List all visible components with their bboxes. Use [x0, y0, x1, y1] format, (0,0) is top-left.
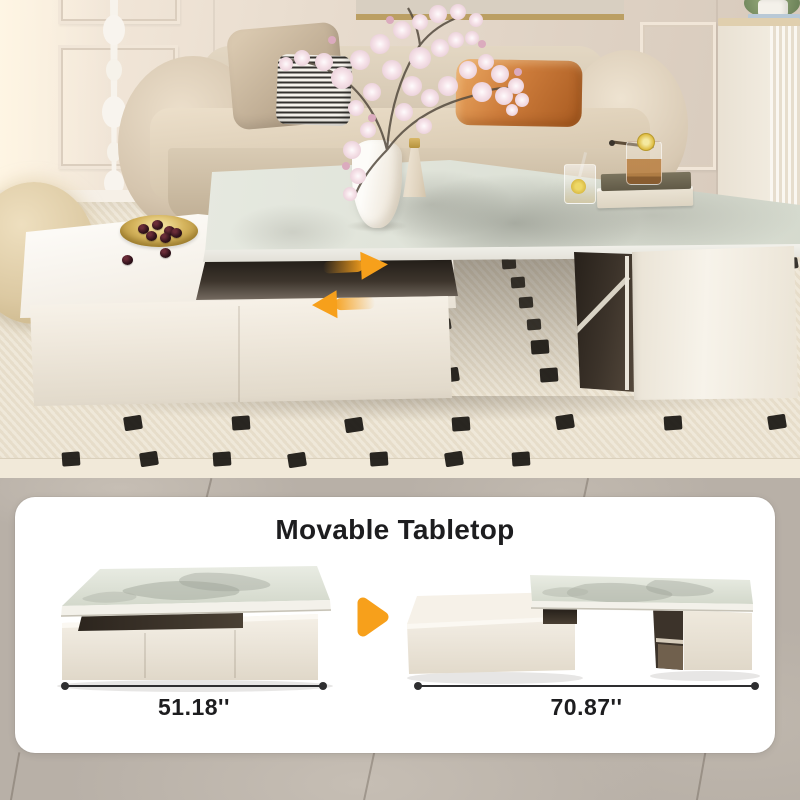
- cherry: [160, 248, 171, 258]
- dimension-line-extended: [416, 685, 757, 687]
- cherry: [146, 231, 157, 241]
- dimension-label-compact: 51.18'': [63, 694, 325, 721]
- cherry: [122, 255, 133, 265]
- diagram-compact: [45, 559, 345, 695]
- lemon-slice: [571, 179, 586, 194]
- diagram-extended: [405, 558, 767, 688]
- lemon-wheel: [637, 133, 655, 151]
- transform-arrow-icon: [353, 593, 391, 641]
- cherry: [152, 220, 163, 230]
- panel-title: Movable Tabletop: [15, 513, 775, 547]
- lifestyle-photo: [0, 0, 800, 497]
- flower-bouquet: [272, 0, 528, 236]
- info-panel: Movable Tabletop: [15, 497, 775, 753]
- product-image: Movable Tabletop: [0, 0, 800, 800]
- dimension-extended: 70.87'': [416, 685, 757, 721]
- stirrer-ball: [609, 140, 615, 146]
- dimension-label-extended: 70.87'': [416, 694, 757, 721]
- cherry: [171, 228, 182, 238]
- cherry: [160, 233, 171, 243]
- dimension-compact: 51.18'': [63, 685, 325, 721]
- dimension-line-compact: [63, 685, 325, 687]
